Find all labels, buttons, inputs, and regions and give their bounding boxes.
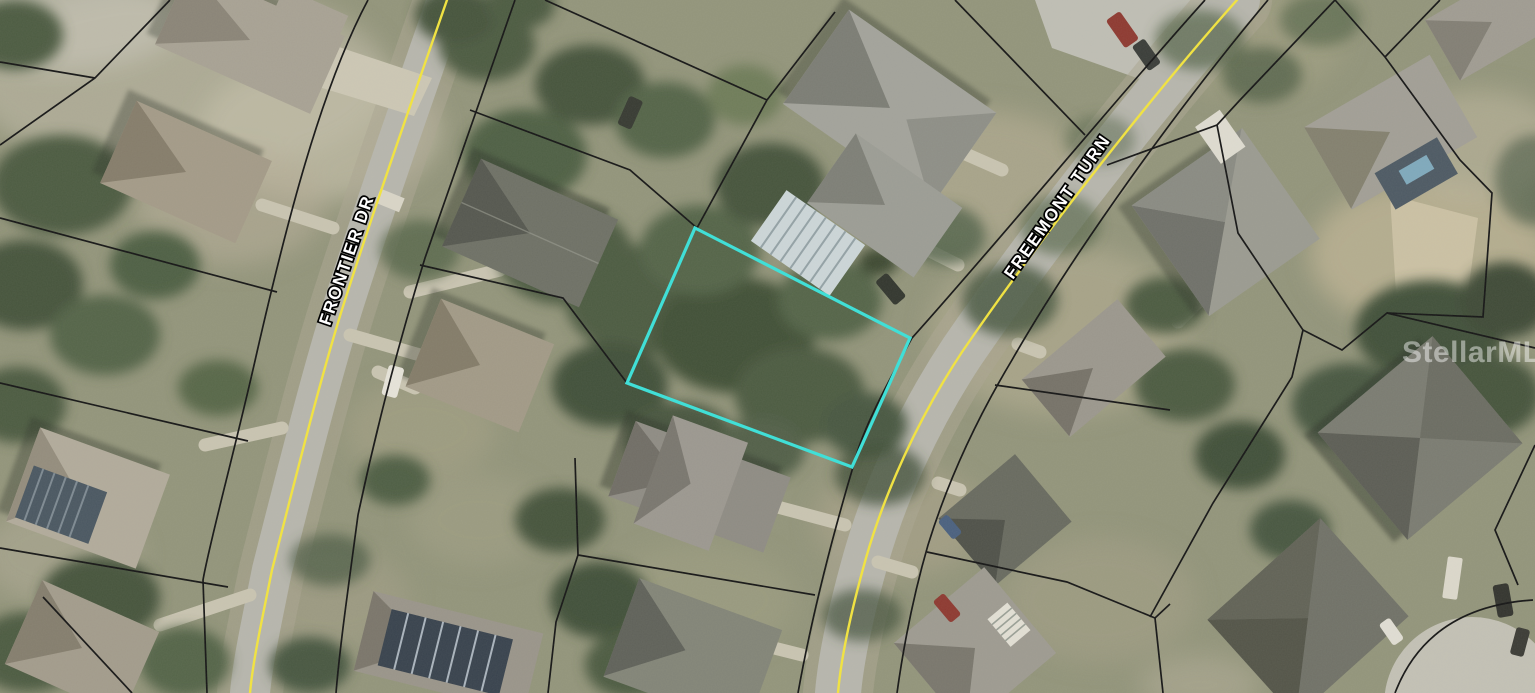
aerial-map-image: FRONTIER DR FREEMONT TURN StellarMLS — [0, 0, 1535, 693]
photo-grain-texture — [0, 0, 1535, 693]
aerial-map-svg: FRONTIER DR FREEMONT TURN StellarMLS — [0, 0, 1535, 693]
watermark-stellar-mls: StellarMLS — [1402, 336, 1535, 369]
